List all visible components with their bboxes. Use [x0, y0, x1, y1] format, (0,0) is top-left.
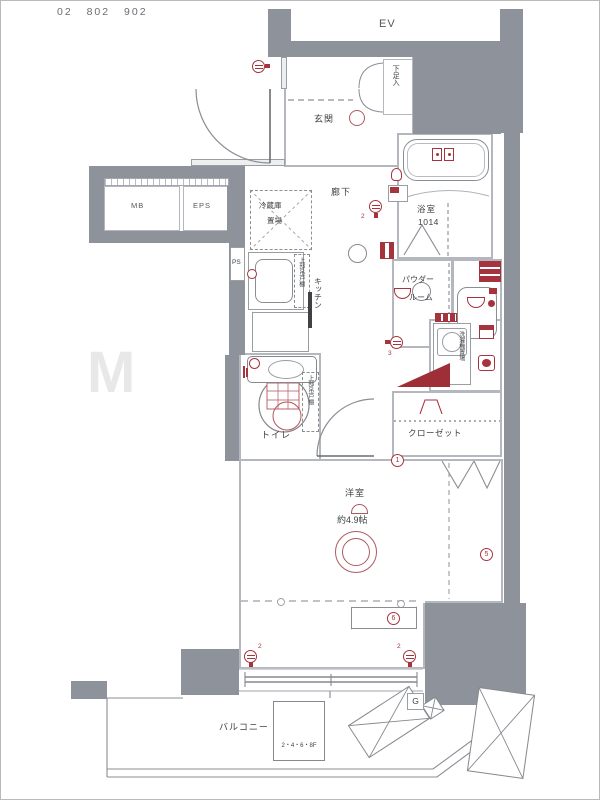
- kitchen-faucet-icon: [247, 269, 257, 279]
- hallway-light-circle: [348, 244, 367, 263]
- gas-meter-box: G: [407, 693, 424, 710]
- ps-label: PS: [232, 259, 241, 267]
- fridge-label-2: 置場: [267, 216, 282, 226]
- window-outlet-right-count: 2: [397, 643, 401, 650]
- entrance-door-arc: [196, 89, 270, 163]
- stove-box: [252, 312, 309, 352]
- kitchen-label: キッチン: [312, 277, 322, 309]
- entrance-label: 玄関: [314, 114, 334, 126]
- photo-mark-1: 1: [391, 454, 404, 467]
- laundry-red-icon-1: [479, 325, 494, 339]
- laundry-label: 洗濯機置場: [456, 331, 464, 361]
- mb-label: MB: [131, 201, 144, 211]
- hatch-floors-label: 2・4・6・8F: [278, 743, 320, 751]
- hallway-outlet-icon: [369, 200, 382, 213]
- closet-bifold-doors: [442, 461, 500, 488]
- entrance-light-circle: [349, 110, 365, 126]
- toilet-label: トイレ: [261, 430, 291, 442]
- closet-hanger-icon: [420, 400, 442, 414]
- bathroom-label: 浴室: [417, 204, 436, 215]
- toilet-tap-icon: [249, 358, 260, 369]
- window-outlet-left-count: 2: [258, 643, 262, 650]
- window-ticks: [245, 672, 417, 698]
- balcony-label: バルコニー: [219, 722, 269, 734]
- mb-louver: [104, 178, 229, 186]
- ceiling-light-inner: [342, 538, 370, 566]
- shower-dot-1: [436, 153, 439, 156]
- bath-counter-red: [390, 187, 399, 193]
- eps-label: EPS: [193, 201, 211, 211]
- vanity-tap: [489, 288, 497, 294]
- photo-mark-5: 5: [480, 548, 493, 561]
- bath-faucet-icon: [391, 168, 402, 181]
- laundry-red-strip: [435, 313, 457, 322]
- laundry-outlet-icon: [390, 336, 403, 349]
- dash-node-left: [278, 599, 285, 606]
- shoebox-door-arcs: [359, 63, 383, 112]
- entrance-outlet-stem: [265, 64, 270, 68]
- hallway-remote-box: [380, 242, 394, 259]
- vanity-mirror-cabinet: [479, 261, 501, 282]
- toilet-red-tick-2: [246, 368, 248, 377]
- floor-plan: 02 802 902: [0, 0, 600, 800]
- tub-apron-curve: [403, 190, 489, 198]
- ev-label: EV: [379, 17, 396, 31]
- window-outlet-right-stem: [408, 662, 412, 667]
- sink-basin: [255, 259, 293, 303]
- shower-dot-2: [448, 153, 451, 156]
- main-room-size-label: 約4.9帖: [337, 515, 368, 527]
- toilet-tank-basin: [268, 360, 304, 379]
- room-door-arc: [317, 399, 374, 456]
- evacuation-hatch-box: [273, 701, 325, 761]
- toilet-red-tick-1: [243, 366, 245, 378]
- powder-label-2: ルーム: [409, 293, 433, 303]
- laundry-outlet-stem: [385, 340, 390, 344]
- unit-numbers: 02 802 902: [57, 6, 148, 18]
- laundry-outlet-count: 3: [388, 350, 392, 357]
- shoebox-label: 下足入: [391, 65, 400, 86]
- closet-label: クローゼット: [408, 428, 462, 439]
- kitchen-upper-cabinet-label: 上部吊戸棚: [296, 257, 304, 287]
- entrance-outlet-icon: [252, 60, 265, 73]
- main-room-label: 洋室: [345, 488, 365, 500]
- photo-mark-6: 6: [387, 612, 400, 625]
- vanity-red-dot: [488, 300, 495, 307]
- fridge-label-1: 冷蔵庫: [259, 201, 282, 211]
- room-sensor-icon: [351, 504, 368, 514]
- hallway-outlet-count: 2: [361, 213, 365, 220]
- hallway-label: 廊下: [331, 187, 351, 199]
- powder-label-1: パウダー: [402, 275, 434, 285]
- counter-desk: [351, 607, 417, 629]
- bathroom-size-label: 1014: [418, 217, 439, 228]
- toilet-upper-cabinet-label: 上部吊戸棚: [305, 375, 313, 405]
- hatched-rect-b: [467, 688, 534, 779]
- bath-fold-door: [404, 225, 440, 255]
- watermark: M: [87, 339, 141, 406]
- hallway-outlet-stem: [374, 213, 378, 218]
- toilet-seat-box: [267, 383, 299, 409]
- laundry-red-icon-2-dot: [482, 359, 491, 367]
- window-outlet-left-stem: [249, 662, 253, 667]
